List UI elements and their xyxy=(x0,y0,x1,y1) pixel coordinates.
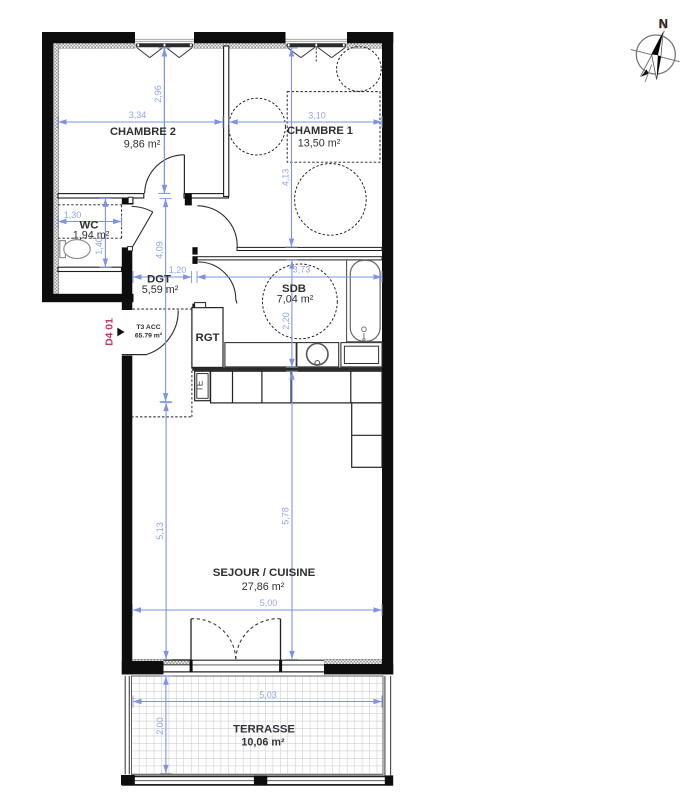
svg-text:SEJOUR / CUISINE: SEJOUR / CUISINE xyxy=(213,567,316,579)
svg-text:1,30: 1,30 xyxy=(64,210,82,220)
svg-text:1,20: 1,20 xyxy=(169,265,187,275)
svg-text:3,34: 3,34 xyxy=(129,110,147,120)
svg-text:65.79 m²: 65.79 m² xyxy=(135,332,163,339)
svg-text:9,86 m²: 9,86 m² xyxy=(124,139,161,151)
svg-text:N: N xyxy=(659,17,668,31)
svg-text:5,78: 5,78 xyxy=(281,507,291,525)
svg-text:2,96: 2,96 xyxy=(153,85,163,103)
svg-text:5,00: 5,00 xyxy=(260,598,278,608)
svg-text:RGT: RGT xyxy=(195,332,219,344)
svg-text:TERRASSE: TERRASSE xyxy=(233,724,295,736)
svg-text:7,04 m²: 7,04 m² xyxy=(277,294,314,306)
svg-text:D4 01: D4 01 xyxy=(105,318,116,346)
svg-text:5,59 m²: 5,59 m² xyxy=(142,284,179,296)
svg-text:CHAMBRE 2: CHAMBRE 2 xyxy=(110,126,176,138)
svg-text:5,03: 5,03 xyxy=(259,690,277,700)
svg-text:10,06 m²: 10,06 m² xyxy=(241,736,285,748)
svg-text:3,10: 3,10 xyxy=(308,111,326,121)
svg-text:2,00: 2,00 xyxy=(155,717,165,735)
svg-text:4,09: 4,09 xyxy=(154,241,164,259)
svg-text:5,13: 5,13 xyxy=(155,522,165,540)
svg-text:TE: TE xyxy=(195,380,205,391)
svg-text:3,73: 3,73 xyxy=(293,265,311,275)
svg-text:CHAMBRE 1: CHAMBRE 1 xyxy=(287,125,353,137)
svg-text:2,20: 2,20 xyxy=(281,312,291,330)
svg-text:T3 ACC: T3 ACC xyxy=(136,324,160,331)
svg-text:13,50 m²: 13,50 m² xyxy=(298,138,341,150)
svg-text:4,13: 4,13 xyxy=(280,169,290,187)
svg-text:27,86 m²: 27,86 m² xyxy=(242,581,285,593)
svg-text:1,94 m²: 1,94 m² xyxy=(73,229,110,241)
